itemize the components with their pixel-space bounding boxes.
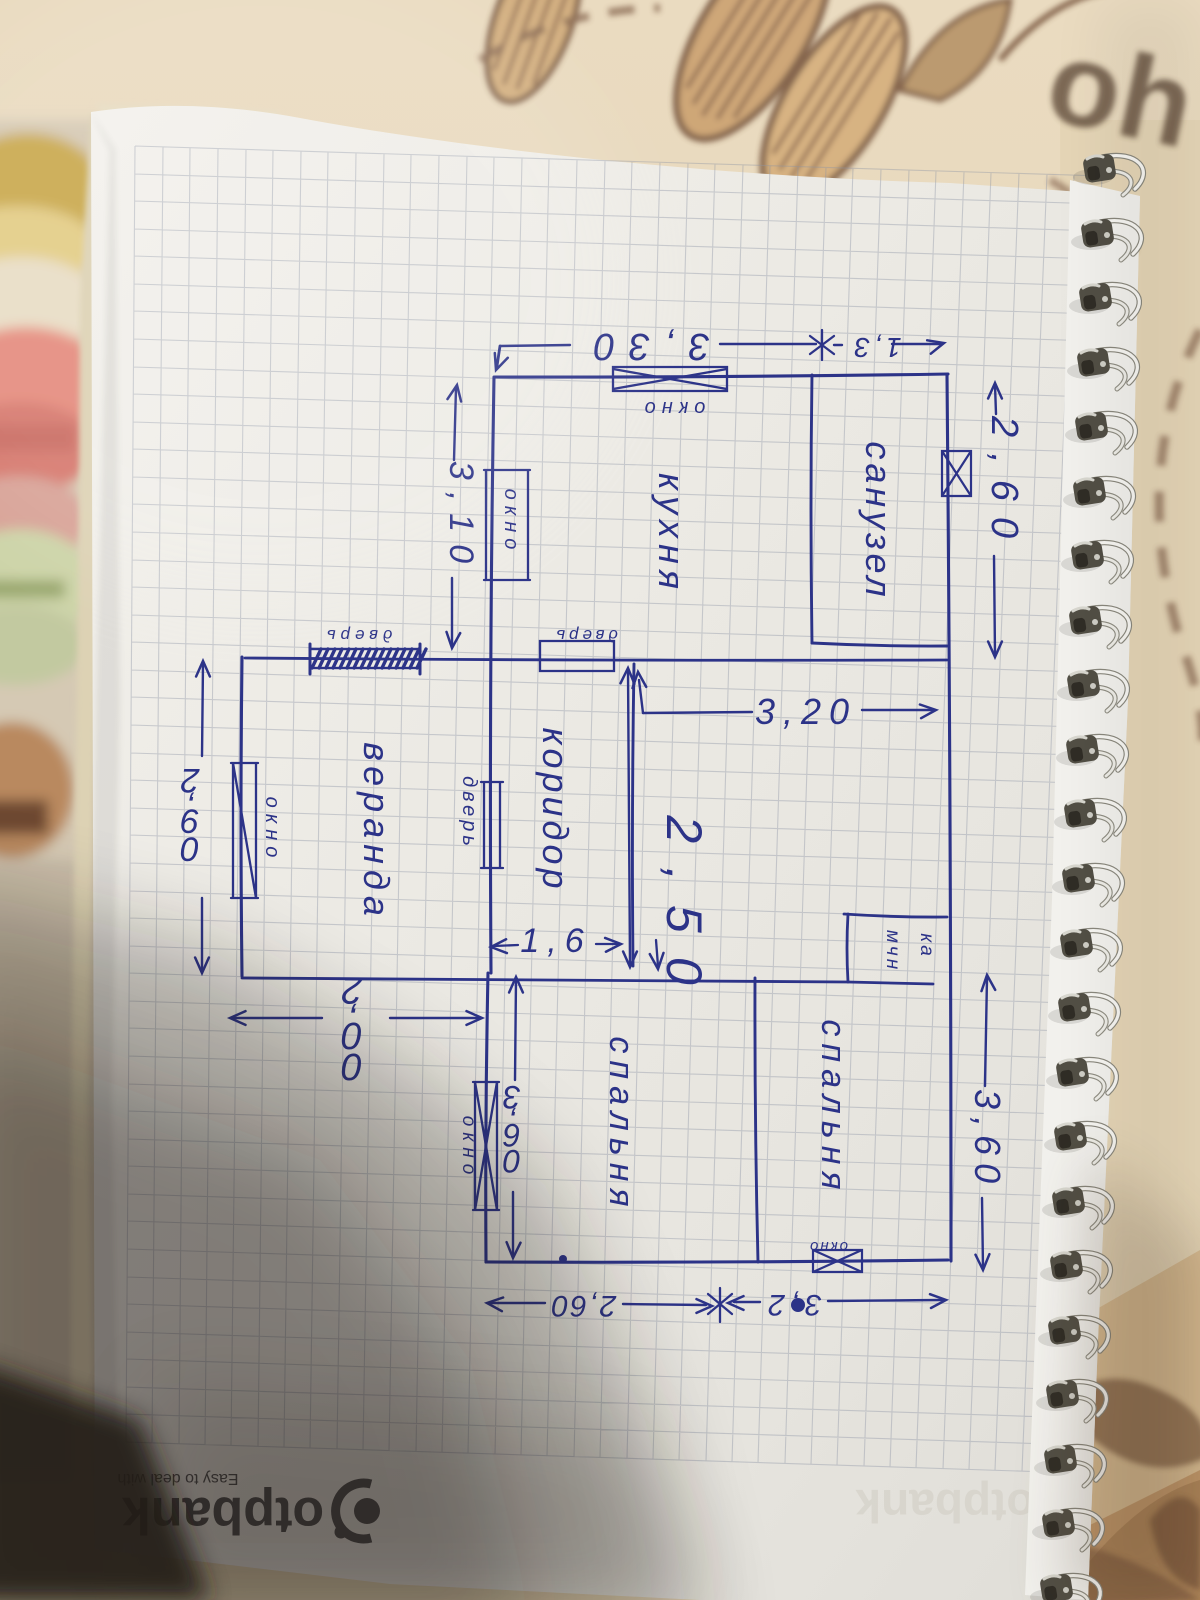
svg-text:дверь: дверь [458,776,480,850]
svg-text:окно: окно [808,1238,848,1255]
svg-text:санузел: санузел [858,441,899,600]
svg-text:1,6: 1,6 [520,922,591,960]
svg-text:окно: окно [639,397,706,419]
svg-text:3,20: 3,20 [755,691,857,732]
svg-text:кухня: кухня [651,473,692,595]
svg-text:мчн: мчн [882,930,903,972]
svg-text:ка: ка [916,933,937,959]
svg-text:3,60: 3,60 [967,1089,1008,1191]
svg-text:1,3: 1,3 [851,332,902,363]
svg-text:спальня: спальня [814,1019,852,1196]
svg-text:веранда: веранда [356,742,397,922]
svg-text:спальня: спальня [602,1036,640,1213]
svg-text:0: 0 [180,829,199,867]
svg-text:2,50: 2,50 [656,814,712,1008]
svg-text:дверь: дверь [322,626,393,645]
svg-text:otpbank: otpbank [855,1480,1034,1532]
svg-text:окно: окно [261,797,283,864]
svg-text:2,60: 2,60 [983,415,1025,554]
svg-text:дверь: дверь [552,626,618,645]
svg-text:коридор: коридор [535,727,576,892]
